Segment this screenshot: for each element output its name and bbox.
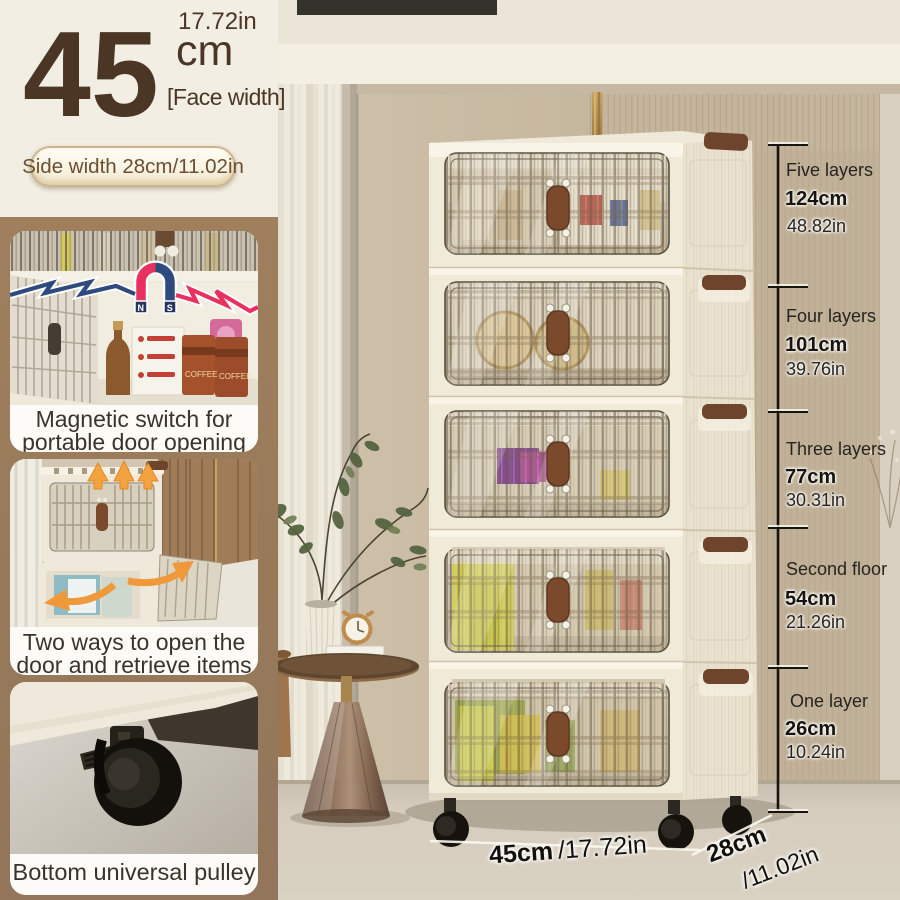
svg-text:N: N: [138, 303, 145, 313]
svg-text:COFFEE: COFFEE: [185, 370, 217, 379]
svg-text:COFFEE: COFFEE: [219, 372, 251, 381]
svg-text:S: S: [167, 303, 173, 313]
